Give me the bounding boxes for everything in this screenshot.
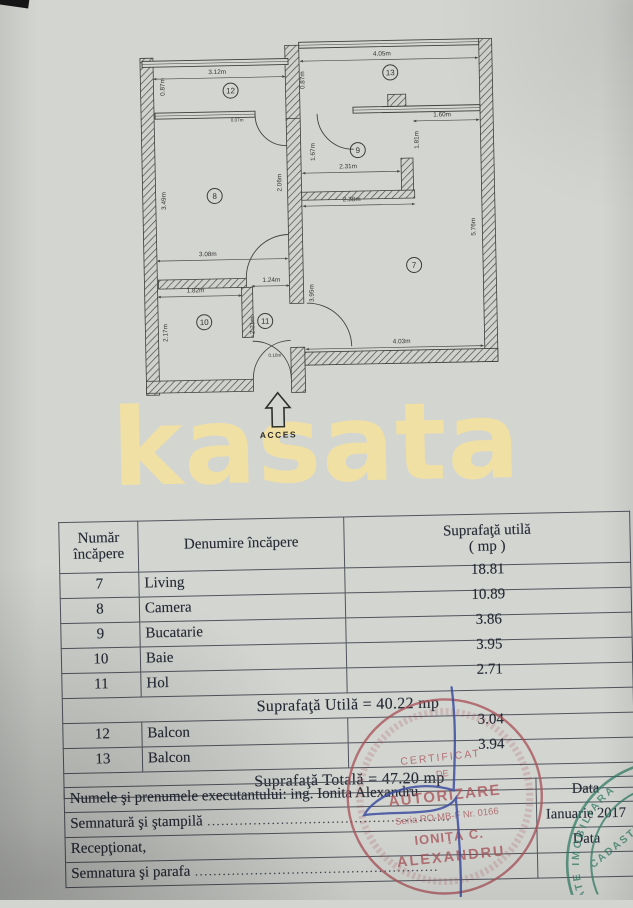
dimension-line xyxy=(252,286,288,287)
dimension-line xyxy=(159,295,241,297)
cell-area-text: 2.71 xyxy=(476,662,503,678)
stamp-line-ionita: IONIŢĂ C. xyxy=(414,826,485,848)
dimension-line xyxy=(414,120,478,121)
dimension-line xyxy=(301,58,477,62)
dimension-label: 0.10m xyxy=(268,353,281,358)
cell-name-text: Baie xyxy=(146,650,174,667)
room-number: 9 xyxy=(355,146,360,155)
stamp-line-seria: Seria RO-MB-F Nr. 0166 xyxy=(395,806,500,828)
dimension-line xyxy=(303,171,399,173)
photographed-paper: kasata xyxy=(0,0,633,906)
dimension-label: 1.60m xyxy=(433,111,451,118)
dimension-label: 1.24m xyxy=(262,277,280,284)
dimension-line xyxy=(307,346,483,350)
room-number: 13 xyxy=(386,68,396,77)
cell-area-text: 18.81 xyxy=(471,562,505,578)
dimension-label: 0.87m xyxy=(159,78,166,96)
cell-area-text: 3.95 xyxy=(476,637,503,653)
dimension-label: 2.17m xyxy=(162,324,169,342)
dimension-label: 3.49m xyxy=(161,192,168,210)
dimension-label: 1.82m xyxy=(187,287,205,294)
cell-nr: 13 xyxy=(63,747,142,774)
cell-nr-text: 12 xyxy=(95,726,110,742)
header-room-name: Denumire încăpere xyxy=(138,517,345,572)
dimension-label: 2.06m xyxy=(276,174,283,192)
signature-label-text: Semnatură şi ştampilă xyxy=(70,813,203,832)
room-number: 12 xyxy=(226,86,236,95)
cell-nr: 9 xyxy=(61,622,140,649)
cell-nr-text: 7 xyxy=(96,576,104,592)
cell-nr-text: 10 xyxy=(93,651,108,667)
room-number: 7 xyxy=(412,261,417,270)
cell-name-text: Bucatarie xyxy=(145,624,203,641)
dimension-label: 5.76m xyxy=(470,218,477,236)
dimension-label: 4.03m xyxy=(393,338,411,345)
cell-nr: 11 xyxy=(62,672,141,699)
green-stamp-graphic: PUBLICITATE IMOBILIARA CADASTRU xyxy=(565,759,633,896)
green-round-stamp: PUBLICITATE IMOBILIARA CADASTRU xyxy=(539,746,633,896)
cell-nr-text: 8 xyxy=(96,601,104,617)
cell-name-text: Living xyxy=(144,575,184,592)
room-number: 11 xyxy=(261,317,270,326)
cell-nr: 7 xyxy=(60,572,139,599)
room-rows: 7Living18.818Camera10.899Bucatarie3.8610… xyxy=(60,562,633,698)
header-area: Suprafaţă utilă ( mp ) xyxy=(344,511,631,568)
red-round-stamp: CERTIFICAT DE AUTORIZARE Seria RO-MB-F N… xyxy=(337,692,553,901)
cell-nr-text: 9 xyxy=(97,626,105,642)
dimension-line xyxy=(154,77,284,80)
dimension-label: 2.31m xyxy=(339,163,357,170)
red-stamp-graphic: CERTIFICAT DE AUTORIZARE Seria RO-MB-F N… xyxy=(338,692,552,901)
stamp-line-de: DE xyxy=(436,768,450,779)
room-number: 10 xyxy=(200,318,210,327)
scanned-apartment-plan-document: { "watermark": { "text": "kasata", "colo… xyxy=(0,0,633,900)
cell-nr: 10 xyxy=(61,647,140,674)
dimension-line xyxy=(304,204,414,206)
dimension-label: 2.38m xyxy=(343,196,361,203)
dimension-line xyxy=(158,259,287,262)
cell-name-text: Hol xyxy=(146,675,169,691)
dimension-label: 3.08m xyxy=(199,251,217,258)
stamp-line-certificat: CERTIFICAT xyxy=(400,747,482,768)
access-arrow: ACCES xyxy=(259,392,297,440)
room-number: 8 xyxy=(212,192,217,201)
cell-name-text: Balcon xyxy=(148,750,191,767)
dimension-label: 1.81m xyxy=(413,131,420,149)
cell-area-text: 3.86 xyxy=(475,612,502,628)
signature-label-text: Recepţionat, xyxy=(71,840,147,858)
dimension-label: 3.95m xyxy=(308,284,315,302)
dimension-label: 4.05m xyxy=(373,50,391,57)
cell-name-text: Balcon xyxy=(147,725,190,742)
access-label: ACCES xyxy=(260,429,297,440)
cell-nr: 12 xyxy=(63,722,142,749)
cell-area-text: 10.89 xyxy=(471,587,505,603)
wall-layer xyxy=(140,38,499,395)
dimension-label: 0.87m xyxy=(299,71,306,89)
window-layer xyxy=(142,39,480,120)
signature-label-text: Semnatura şi parafa xyxy=(71,864,190,882)
cell-nr-text: 11 xyxy=(94,676,109,692)
cell-nr-text: 13 xyxy=(95,751,110,767)
dimension-labels: 3.12m0.87m4.05m0.87m1.60m1.81m2.31m2.38m… xyxy=(154,49,483,360)
dimension-label: 3.12m xyxy=(208,69,226,76)
floor-plan: 3.12m0.87m4.05m0.87m1.60m1.81m2.31m2.38m… xyxy=(119,26,507,446)
cell-name-text: Camera xyxy=(145,600,192,617)
dimension-label: 1.67m xyxy=(310,143,317,161)
header-room-number: Număr încăpere xyxy=(59,521,139,574)
stamp-line-autorizare: AUTORIZARE xyxy=(388,781,502,810)
dimension-label: 2.21m xyxy=(249,316,256,334)
cell-nr: 8 xyxy=(60,597,139,624)
dimension-label: 0.07m xyxy=(231,117,244,122)
